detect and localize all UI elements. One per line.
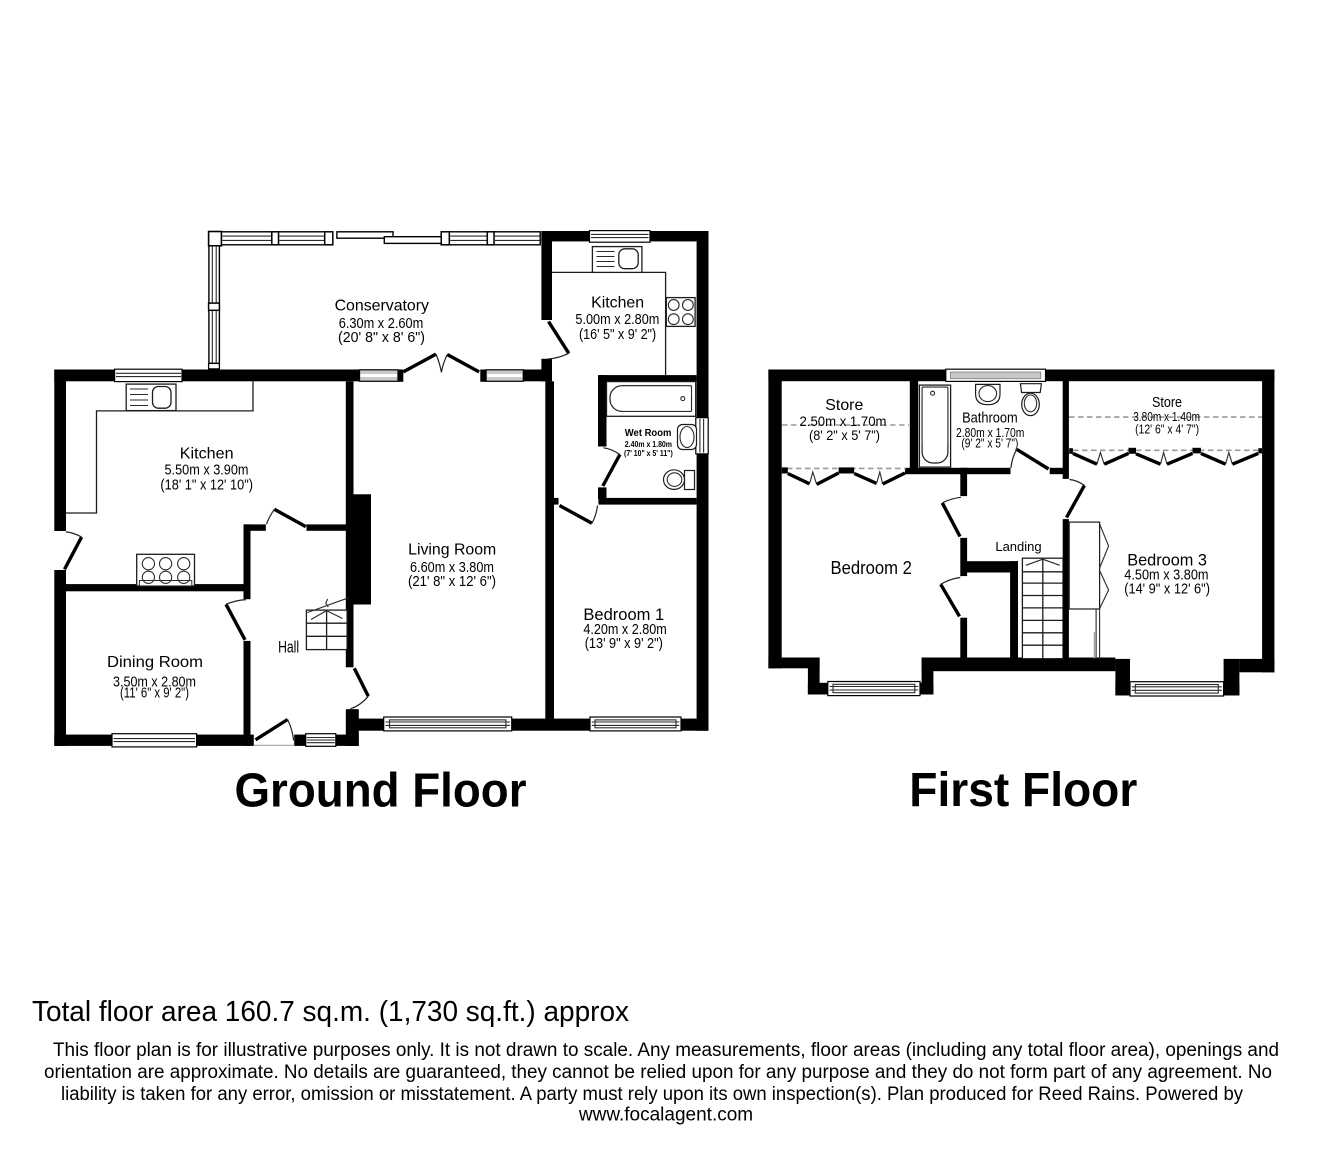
svg-text:(14' 9" x 12' 6"): (14' 9" x 12' 6") — [1124, 582, 1210, 598]
svg-text:Living Room: Living Room — [408, 542, 496, 559]
svg-text:(16' 5" x 9' 2"): (16' 5" x 9' 2") — [579, 327, 656, 343]
svg-text:Dining Room: Dining Room — [107, 654, 203, 671]
svg-text:Total floor area 160.7 sq.m. (: Total floor area 160.7 sq.m. (1,730 sq.f… — [32, 996, 629, 1028]
svg-text:(9' 2" x 5' 7"): (9' 2" x 5' 7") — [961, 436, 1018, 451]
svg-text:First Floor: First Floor — [909, 764, 1137, 817]
svg-text:(18' 1" x 12' 10"): (18' 1" x 12' 10") — [160, 477, 253, 493]
svg-text:Store: Store — [825, 397, 863, 414]
svg-text:(7' 10" x 5' 11"): (7' 10" x 5' 11") — [624, 448, 673, 458]
svg-text:Wet Room: Wet Room — [625, 428, 672, 439]
svg-text:(21' 8" x 12' 6"): (21' 8" x 12' 6") — [408, 574, 496, 590]
svg-text:5.00m x 2.80m: 5.00m x 2.80m — [575, 312, 659, 328]
svg-text:(13' 9" x 9' 2"): (13' 9" x 9' 2") — [585, 636, 663, 652]
svg-text:orientation are approximate. N: orientation are approximate. No details … — [44, 1062, 1272, 1083]
svg-text:Bedroom 2: Bedroom 2 — [831, 558, 912, 578]
svg-text:Kitchen: Kitchen — [180, 446, 234, 463]
svg-text:www.focalagent.com: www.focalagent.com — [578, 1105, 753, 1126]
svg-text:Hall: Hall — [278, 638, 299, 656]
svg-text:Kitchen: Kitchen — [591, 295, 644, 312]
svg-text:(12' 6" x 4' 7"): (12' 6" x 4' 7") — [1135, 422, 1199, 437]
svg-text:5.50m x 3.90m: 5.50m x 3.90m — [165, 463, 249, 479]
svg-text:Landing: Landing — [995, 539, 1041, 554]
svg-text:(11' 6" x 9' 2"): (11' 6" x 9' 2") — [120, 686, 189, 702]
svg-text:Conservatory: Conservatory — [335, 297, 429, 314]
svg-text:(8' 2" x 5' 7"): (8' 2" x 5' 7") — [809, 427, 880, 443]
svg-text:(20' 8" x 8' 6"): (20' 8" x 8' 6") — [338, 330, 425, 346]
svg-text:This floor plan is for illustr: This floor plan is for illustrative purp… — [53, 1040, 1279, 1061]
svg-text:Ground Floor: Ground Floor — [235, 765, 527, 818]
svg-text:liability is taken for any err: liability is taken for any error, omissi… — [61, 1084, 1243, 1105]
svg-text:Bathroom: Bathroom — [962, 410, 1018, 426]
